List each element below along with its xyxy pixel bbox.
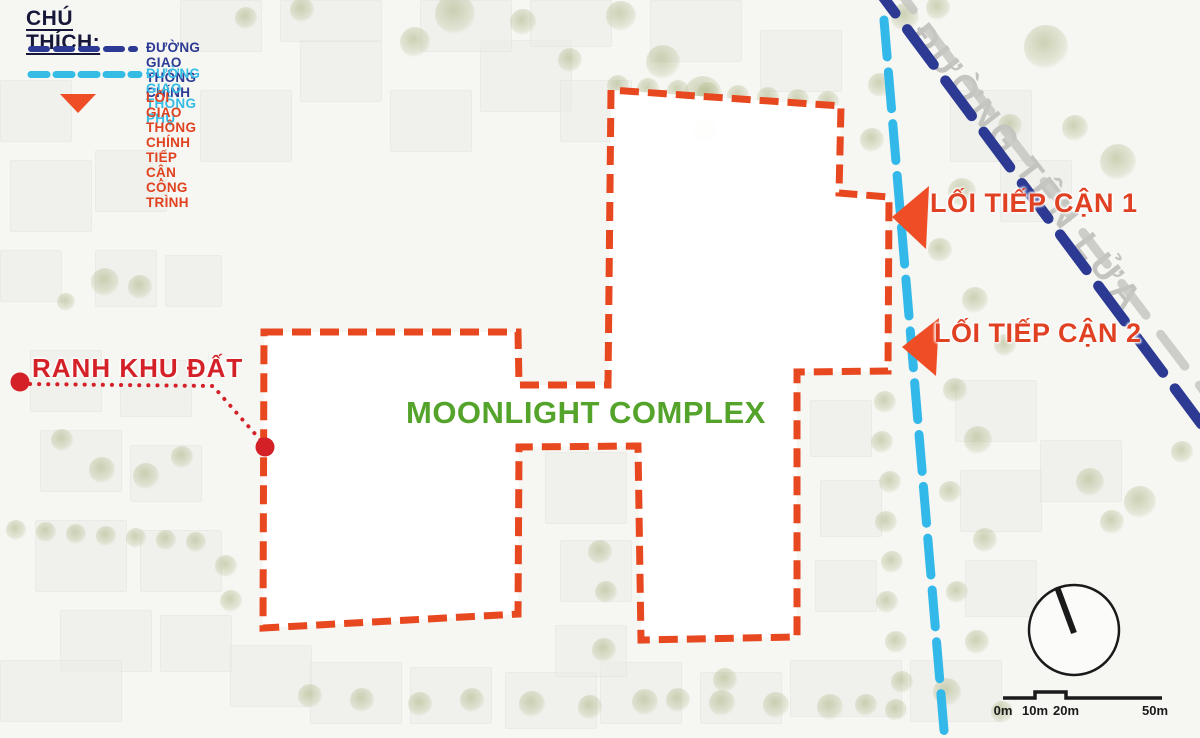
main-road-line-sample [27,44,139,54]
boundary-leader-line [30,384,263,443]
boundary-leader-dot [256,438,275,457]
secondary-road-line-sample [27,69,143,80]
scale-bar [1003,692,1162,698]
access-arrow-icon [59,93,97,114]
access-2-arrow-icon [902,318,939,376]
boundary-leader-dot [11,373,30,392]
site-plan-map: ĐƯỜNG TÊN LỬA MOONLIGHT COMPLEX RANH KHU… [0,0,1200,738]
legend-item-access-label: LỐI GIAO THÔNG CHÍNH TIẾP CẬN CÔNG TRÌNH [146,90,196,210]
site-boundary [263,90,889,640]
secondary-road [884,20,945,738]
